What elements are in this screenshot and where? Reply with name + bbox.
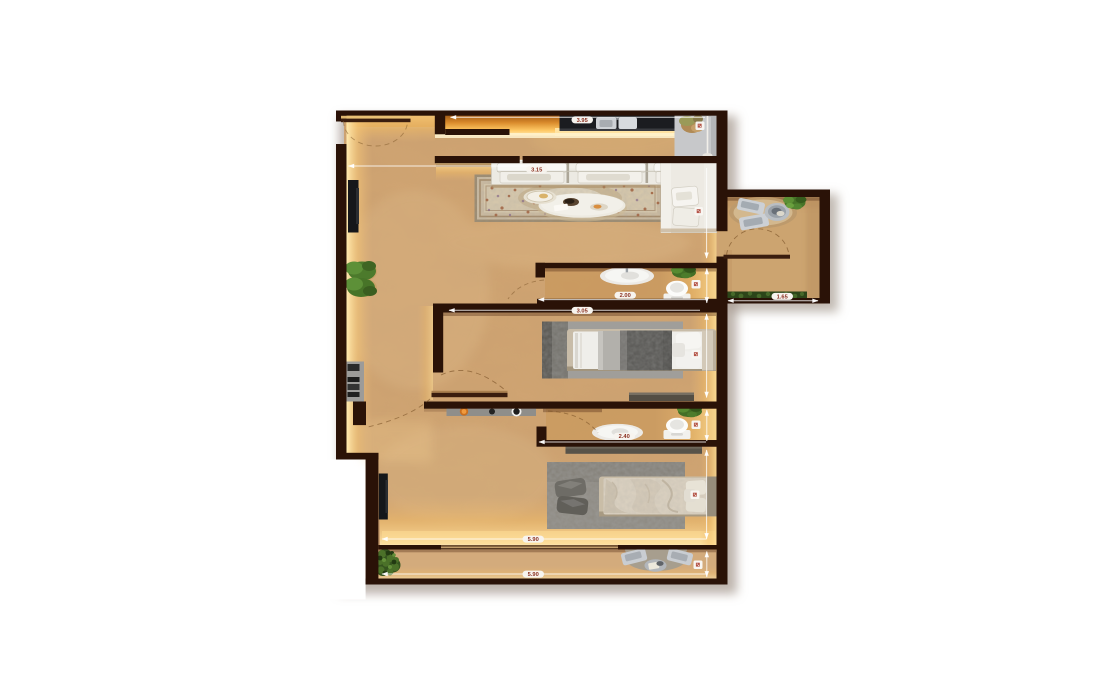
svg-text:5.90: 5.90 [528, 537, 539, 543]
svg-text:3.95: 3.95 [577, 118, 588, 124]
svg-text:2.40: 2.40 [619, 434, 630, 440]
svg-text:5.90: 5.90 [528, 572, 539, 578]
svg-text:1.65: 1.65 [777, 294, 788, 300]
svg-text:2.00: 2.00 [620, 293, 631, 299]
svg-text:3.15: 3.15 [531, 167, 542, 173]
svg-text:3.05: 3.05 [577, 308, 588, 314]
